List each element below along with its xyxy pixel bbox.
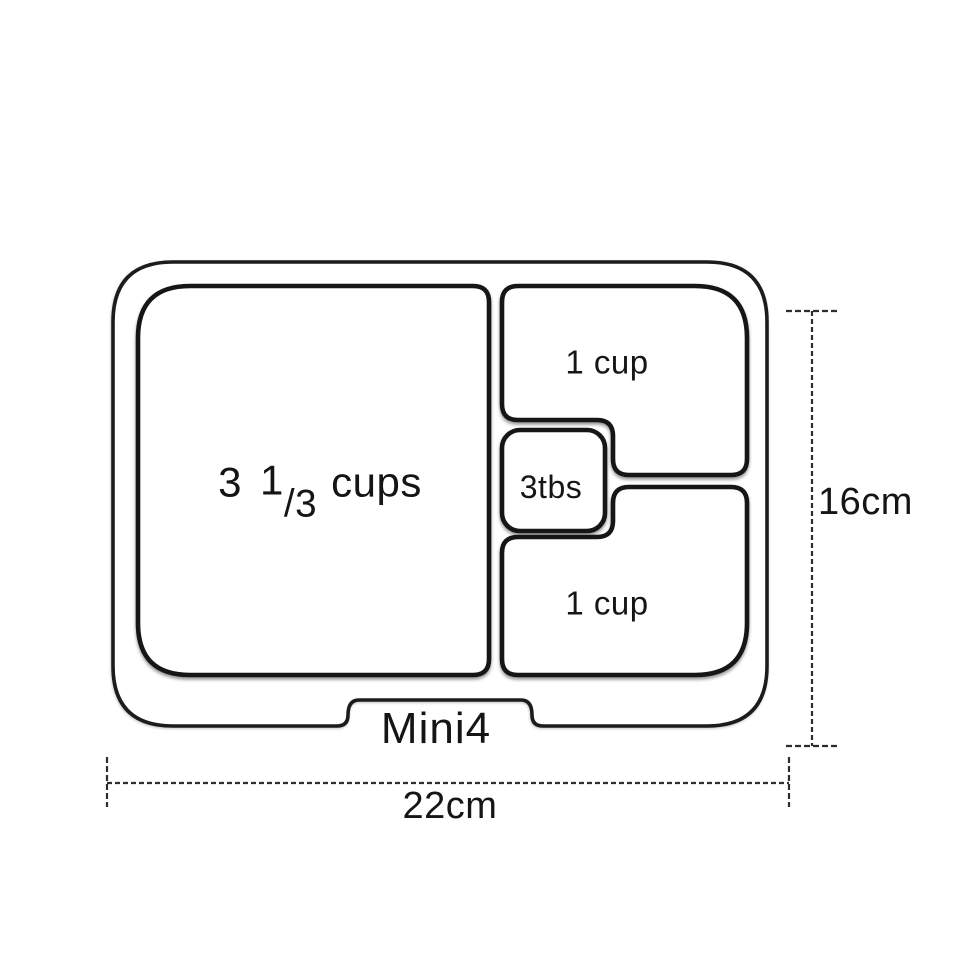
width-dimension-label: 22cm bbox=[403, 787, 498, 825]
product-name-label: Mini4 bbox=[381, 707, 491, 751]
height-dimension-label: 16cm bbox=[818, 483, 913, 521]
diagram-canvas: 31/3cups 1 cup 3tbs 1 cup Mini4 16cm 22c… bbox=[0, 0, 960, 960]
capacity-unit: cups bbox=[331, 459, 422, 506]
top-right-compartment-capacity-label: 1 cup bbox=[565, 346, 648, 379]
capacity-fraction-numerator: 1 bbox=[260, 457, 284, 504]
capacity-fraction-denominator: /3 bbox=[284, 483, 317, 526]
bottom-right-compartment-capacity-label: 1 cup bbox=[565, 587, 648, 620]
main-compartment-capacity-label: 31/3cups bbox=[218, 462, 422, 505]
capacity-whole-number: 3 bbox=[218, 459, 242, 506]
small-compartment-capacity-label: 3tbs bbox=[520, 471, 582, 503]
